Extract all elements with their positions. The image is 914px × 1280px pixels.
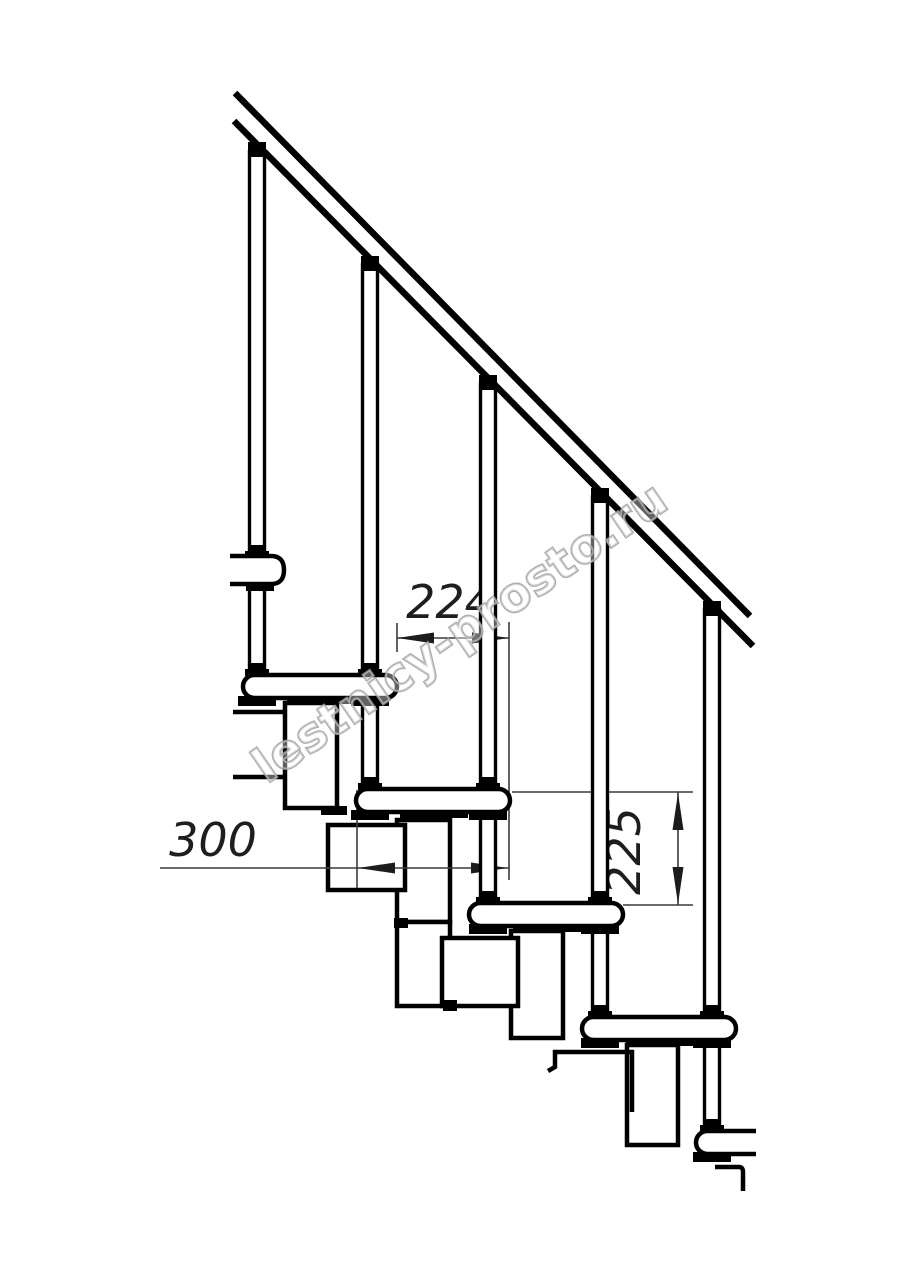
tread-pad — [693, 1038, 731, 1048]
upper-landing-tread — [230, 556, 284, 584]
support-plate — [513, 925, 581, 932]
tread-2 — [356, 789, 510, 812]
handrail-connector — [479, 375, 497, 384]
tread-pad — [581, 924, 619, 934]
module-box-partial — [548, 1052, 632, 1112]
arrow-up-icon — [673, 793, 684, 830]
module-joint-mark — [443, 1000, 457, 1011]
module-box-wide — [328, 825, 405, 890]
handrail-connector — [251, 150, 263, 157]
module-joint-mark — [321, 806, 347, 815]
module-box — [627, 1045, 678, 1145]
tread-pad — [246, 583, 274, 591]
support-plate — [626, 1039, 694, 1046]
staircase-drawing-svg: 224 300 225 — [0, 0, 914, 1280]
handrail-connector — [591, 488, 609, 497]
watermark-text: lestnicy-prosto.ru — [243, 471, 678, 794]
staircase-drawing: 224 300 225 — [0, 0, 914, 1280]
handrail-connector — [364, 264, 376, 271]
tread-pad — [238, 696, 276, 706]
baluster-5 — [703, 601, 721, 1134]
handrail-connector — [482, 383, 494, 390]
tread-pad — [693, 1152, 731, 1162]
module-box-wide — [442, 938, 518, 1006]
tread-5 — [696, 1131, 756, 1154]
tread-pad — [469, 810, 507, 820]
dimension-label-tread-depth: 300 — [169, 813, 257, 867]
tread-pad — [581, 1038, 619, 1048]
tread-pad — [469, 924, 507, 934]
handrail-connector — [703, 601, 721, 610]
handrail-connector — [248, 142, 266, 151]
tread-4 — [582, 1017, 736, 1040]
tread-pad — [351, 810, 389, 820]
tread-3 — [469, 903, 623, 926]
handrail-connector — [361, 256, 379, 265]
handrail-connector — [706, 609, 718, 616]
arrow-down-icon — [673, 867, 684, 904]
bottom-step-outline — [715, 1167, 743, 1191]
support-plate — [400, 811, 468, 818]
baluster-1 — [248, 142, 266, 678]
module-joint-mark — [394, 918, 408, 928]
